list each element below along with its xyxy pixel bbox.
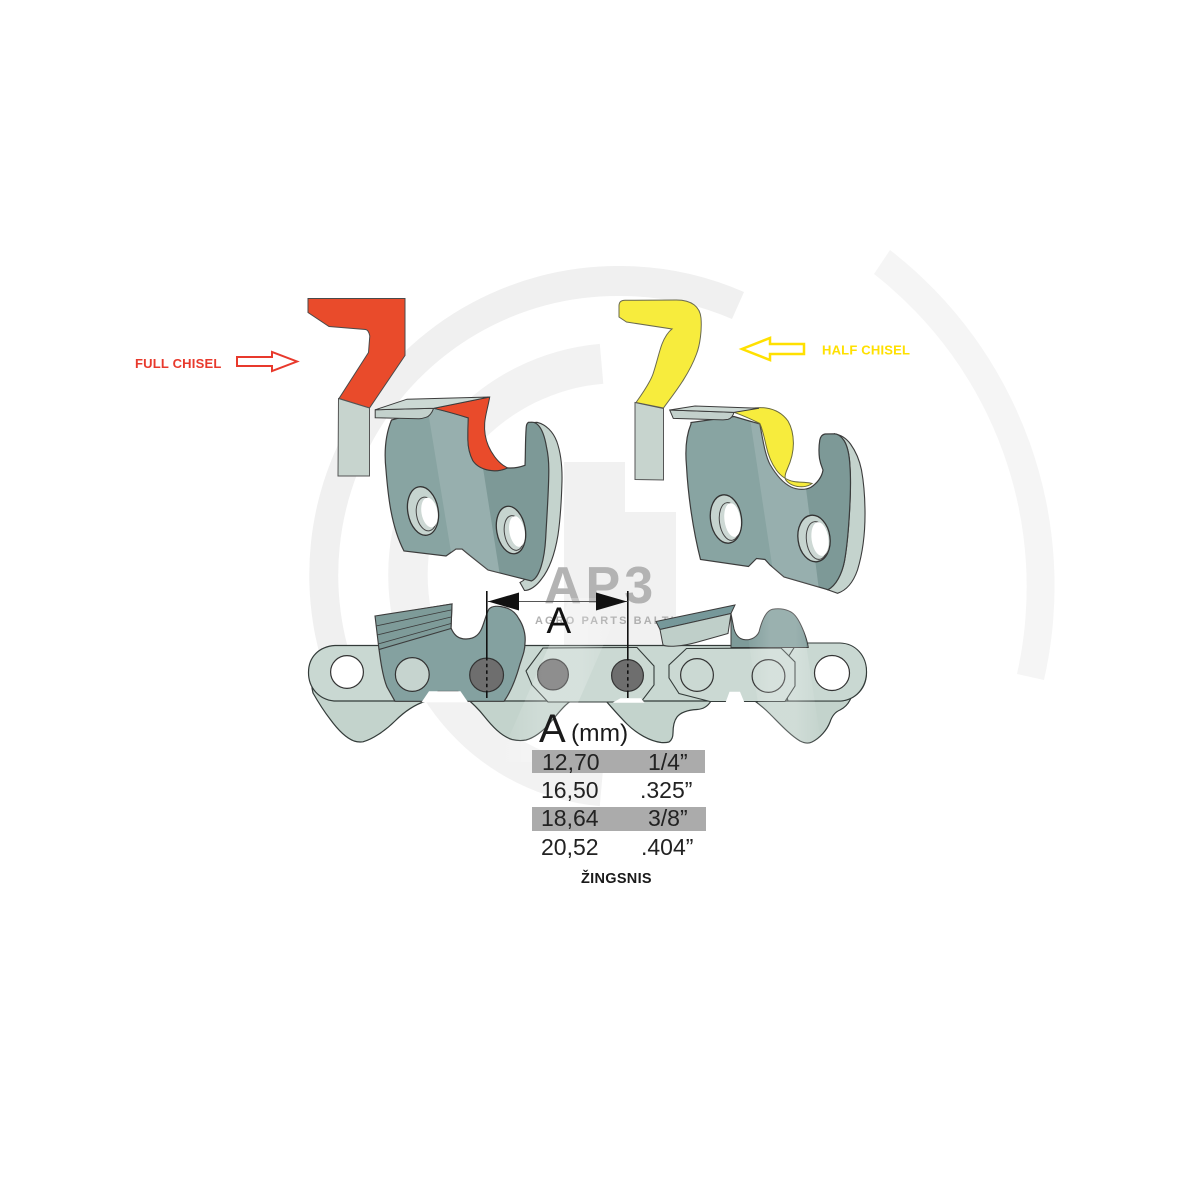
svg-text:12,70: 12,70 [542,749,600,775]
svg-text:.404”: .404” [641,834,693,860]
svg-text:ŽINGSNIS: ŽINGSNIS [581,869,652,887]
svg-text:18,64: 18,64 [541,805,599,831]
svg-text:(mm): (mm) [571,720,628,747]
svg-text:.325”: .325” [640,777,692,803]
svg-text:1/4”: 1/4” [648,749,688,775]
svg-text:16,50: 16,50 [541,777,599,803]
svg-text:20,52: 20,52 [541,834,599,860]
svg-text:A: A [547,600,572,641]
svg-text:A: A [539,707,566,751]
svg-text:3/8”: 3/8” [648,805,688,831]
svg-text:FULL CHISEL: FULL CHISEL [135,356,221,371]
svg-text:HALF CHISEL: HALF CHISEL [822,343,910,358]
